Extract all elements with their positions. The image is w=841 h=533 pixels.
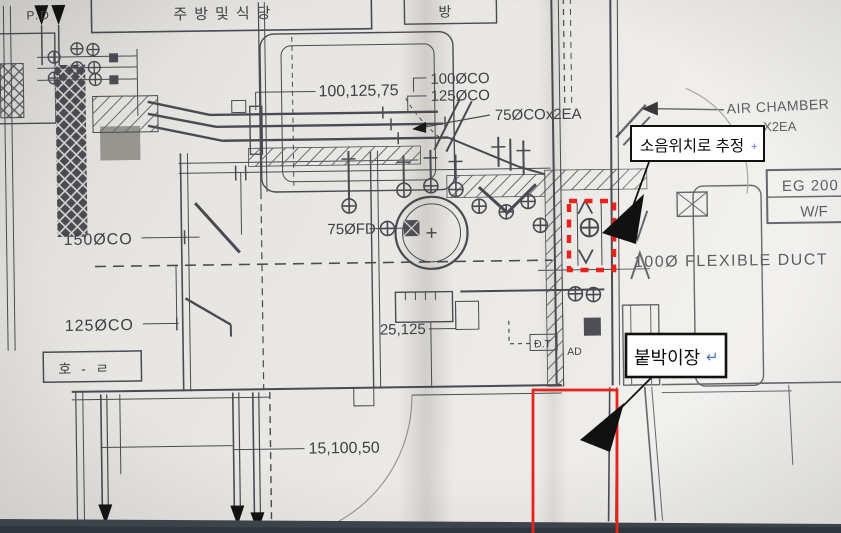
noise-text-cursor: +: [751, 141, 757, 153]
closet-text-cursor: ↵: [706, 349, 719, 366]
annotated-blueprint-photo: P.D 주방및식당: [0, 0, 841, 533]
noise-callout-box[interactable]: 소음위치로 추정 +: [631, 126, 764, 161]
closet-callout-box[interactable]: 붙박이장 ↵: [626, 334, 726, 377]
photo-shading: [0, 0, 841, 533]
closet-callout-text: 붙박이장: [634, 348, 700, 368]
noise-callout-text: 소음위치로 추정: [640, 137, 744, 155]
blueprint-svg: P.D 주방및식당: [0, 0, 841, 533]
